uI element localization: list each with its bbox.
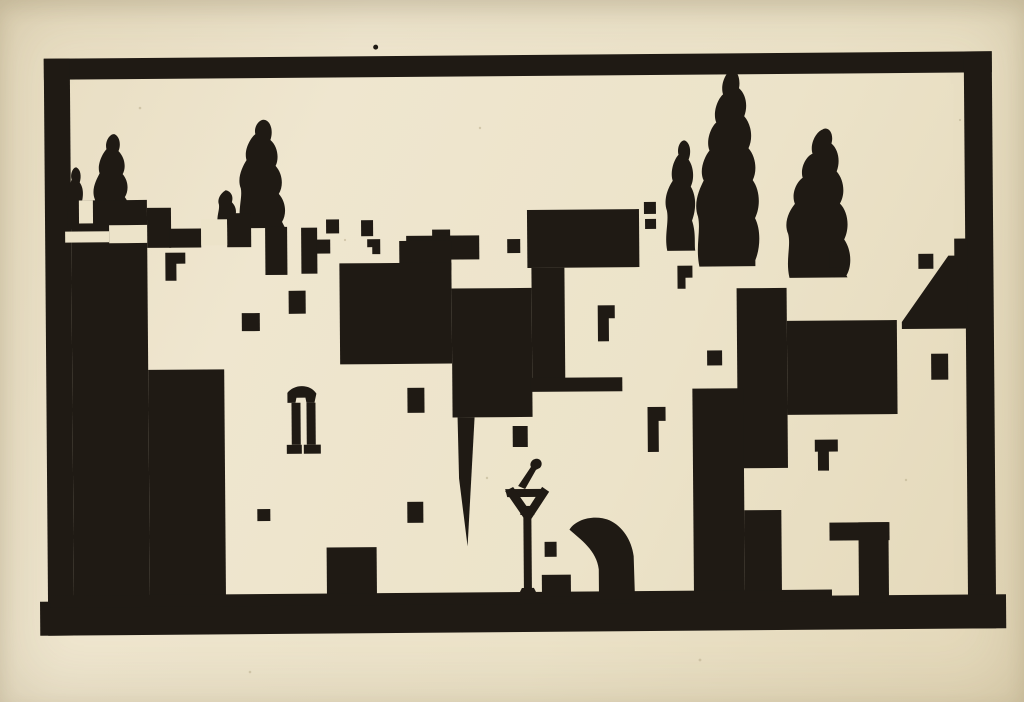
tree-icon — [239, 120, 285, 229]
slanted-roof — [901, 238, 968, 329]
tree-icon — [695, 70, 759, 267]
tree-icon — [665, 140, 695, 251]
alley-shadow — [458, 417, 476, 546]
lamppost-base — [516, 588, 540, 600]
woodcut-print — [0, 0, 1024, 702]
ink-dot — [373, 45, 378, 50]
bird-finial-icon — [518, 459, 542, 489]
arch-shadow — [569, 517, 635, 599]
paper-background — [0, 0, 1024, 702]
ink-layer — [36, 40, 1007, 636]
